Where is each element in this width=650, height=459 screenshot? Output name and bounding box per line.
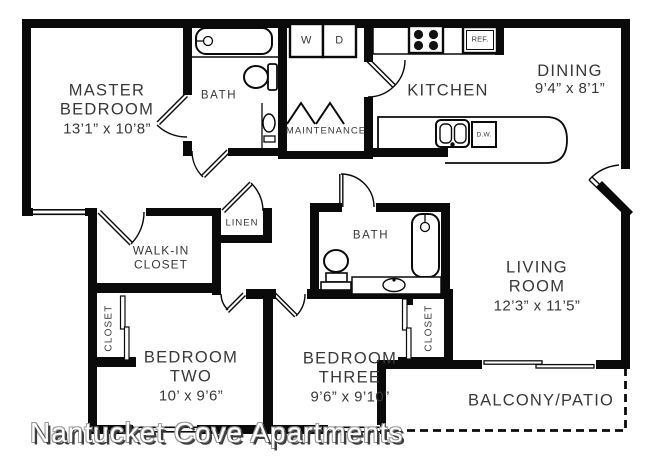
wall-maintenance-bottom [278,151,373,159]
wall-bath2-right [441,203,450,298]
room-label-linen: LINEN [226,219,259,230]
stove [409,26,443,53]
room-label-closet-left: CLOSET [103,304,115,351]
sink-upper [262,103,275,148]
closet-left-panel-2 [125,327,130,360]
wall-bath2-left [310,203,319,298]
wall-left-lower-exterior [88,208,97,434]
wall-counter-half [364,148,448,157]
door-bedroom-two [221,293,246,313]
room-label-living-room: LIVING ROOM 12’3” x 11’5” [494,259,581,316]
door-bedroom-three [273,293,305,317]
kitchen-sink [436,120,469,147]
refrigerator-label: REF. [471,35,488,44]
bifold-doors-maintenance [287,103,344,124]
wall-bath1-left-stub [183,141,192,156]
toilet-upper [244,64,277,90]
wall-corridor-right-upper [364,19,373,62]
wall-corridor-left [278,19,287,159]
wall-bedroom-divider [263,294,273,434]
door-bath-lower [340,174,374,207]
floor-plan: MASTER BEDROOM 13’1” x 10’8” BATH MAINTE… [0,0,650,459]
room-label-bath-upper: BATH [201,89,237,102]
wall-closet-right-side [444,289,453,368]
wall-left-upper-exterior [22,19,31,216]
wall-walkin-top [146,208,220,216]
wall-bath2-top-left [310,203,342,212]
room-label-dining: DINING 9’4” x 8’1” [535,62,605,98]
wall-walkin-bottom [88,283,221,293]
bathtub-lower [412,214,439,277]
closet-right-panel-2 [407,328,412,359]
closet-left-panel-1 [121,296,126,329]
window-master [33,208,85,216]
bathtub-upper [188,28,278,57]
closet-right-panel-1 [403,299,408,330]
room-label-maintenance: MAINTENANCE [286,127,366,138]
door-master-bedroom [157,94,188,137]
toilet-lower [321,250,351,290]
wall-linen-right [263,208,272,243]
wall-right-upper-exterior [621,19,630,169]
sliding-glass-door [482,360,596,369]
dryer-label: D [335,34,343,47]
room-label-bath-lower: BATH [353,229,389,242]
door-linen [222,182,263,213]
room-label-master-bedroom: MASTER BEDROOM 13’1” x 10’8” [60,82,154,139]
door-walk-in-closet [98,211,144,246]
wall-walkin-right [212,208,221,295]
room-label-balcony-patio: BALCONY/PATIO [468,392,614,411]
wall-bath2-top-right [376,203,450,212]
room-label-bedroom-three: BEDROOM THREE 9’6” x 9’10” [303,350,397,407]
room-label-walk-in-closet: WALK-IN CLOSET [133,245,190,272]
sink-lower [352,277,441,294]
room-label-bedroom-two: BEDROOM TWO 10’ x 9’6” [144,349,238,406]
door-bath-upper [192,150,230,178]
room-label-kitchen: KITCHEN [407,82,489,101]
fixtures [188,24,567,294]
watermark: Nantucket Cove Apartments [30,417,404,449]
room-label-closet-right: CLOSET [423,304,435,351]
dishwasher-label: D.W. [477,131,492,138]
wall-right-lower-exterior [621,210,630,368]
washer-label: W [301,34,312,47]
door-kitchen [367,59,405,97]
